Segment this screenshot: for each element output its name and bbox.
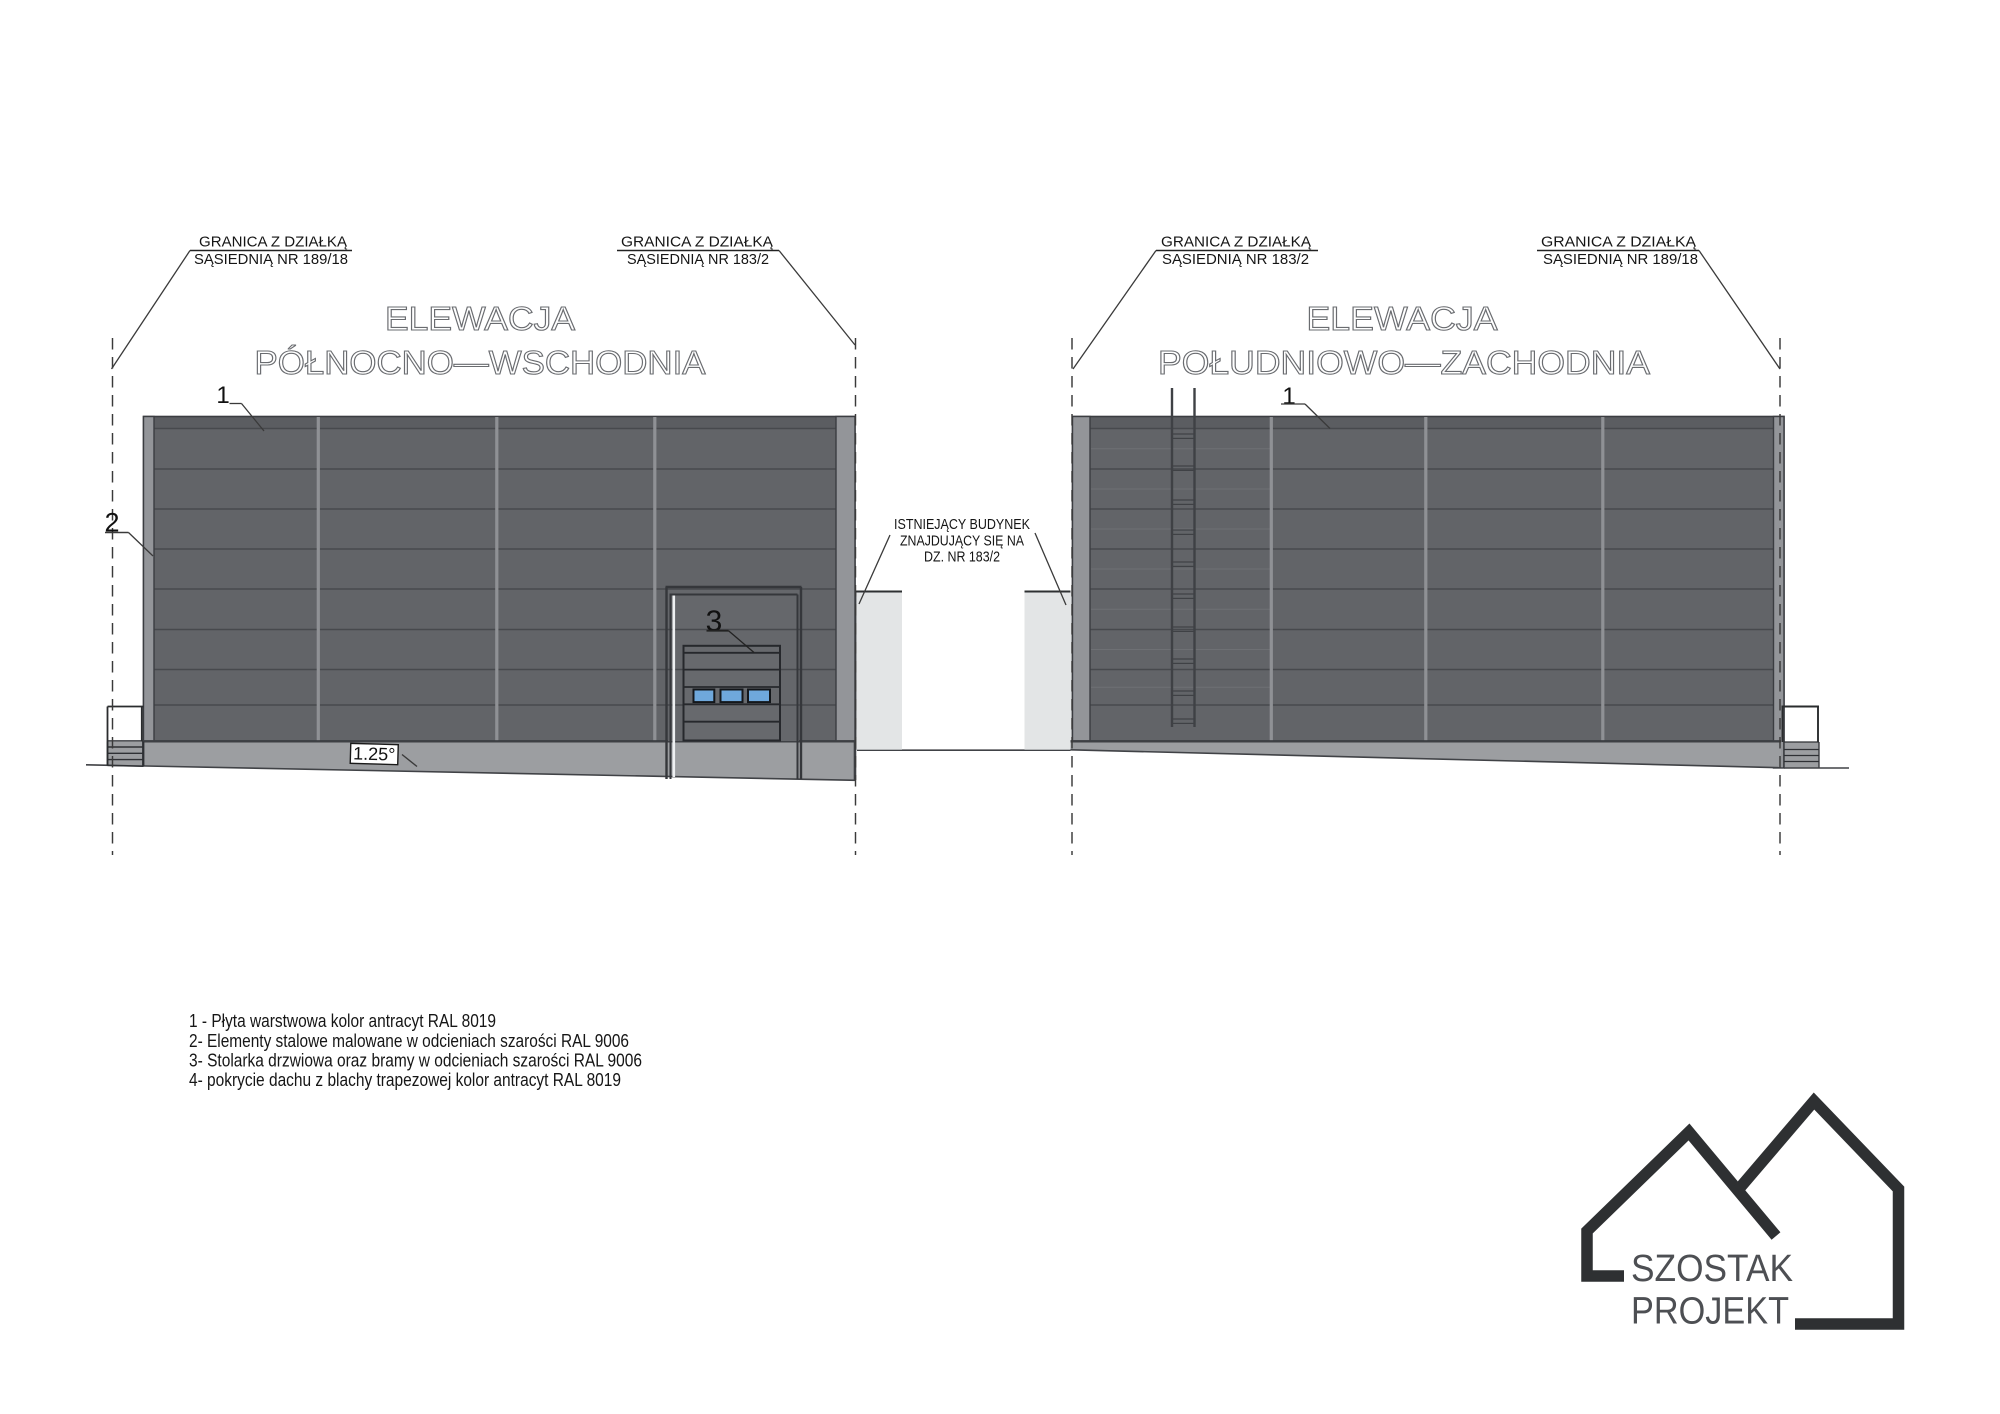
svg-text:SĄSIEDNIĄ NR 183/2: SĄSIEDNIĄ NR 183/2 [627, 251, 769, 268]
svg-text:PÓŁNOCNO—WSCHODNIA: PÓŁNOCNO—WSCHODNIA [255, 344, 706, 381]
svg-text:ELEWACJA: ELEWACJA [385, 300, 575, 337]
svg-text:GRANICA Z DZIAŁKĄ: GRANICA Z DZIAŁKĄ [1161, 234, 1312, 251]
svg-text:SZOSTAK: SZOSTAK [1631, 1248, 1793, 1290]
svg-text:SĄSIEDNIĄ NR 189/18: SĄSIEDNIĄ NR 189/18 [194, 251, 348, 268]
svg-text:1.25°: 1.25° [353, 743, 396, 764]
svg-text:DZ. NR 183/2: DZ. NR 183/2 [924, 549, 1000, 566]
svg-text:1: 1 [1282, 383, 1295, 410]
svg-text:ISTNIEJĄCY BUDYNEK: ISTNIEJĄCY BUDYNEK [894, 516, 1030, 533]
svg-text:4- pokrycie dachu z blachy tra: 4- pokrycie dachu z blachy trapezowej ko… [189, 1070, 621, 1090]
svg-text:PROJEKT: PROJEKT [1631, 1291, 1789, 1333]
svg-text:3: 3 [706, 605, 723, 638]
svg-text:ZNAJDUJĄCY SIĘ NA: ZNAJDUJĄCY SIĘ NA [900, 533, 1024, 550]
svg-text:GRANICA Z DZIAŁKĄ: GRANICA Z DZIAŁKĄ [199, 234, 348, 251]
svg-text:POŁUDNIOWO—ZACHODNIA: POŁUDNIOWO—ZACHODNIA [1158, 344, 1650, 381]
svg-text:1: 1 [216, 382, 229, 409]
svg-text:3- Stolarka drzwiowa oraz bram: 3- Stolarka drzwiowa oraz bramy w odcien… [189, 1050, 642, 1070]
svg-text:ELEWACJA: ELEWACJA [1307, 300, 1498, 337]
svg-text:2- Elementy stalowe malowane w: 2- Elementy stalowe malowane w odcieniac… [189, 1031, 629, 1051]
svg-text:GRANICA Z DZIAŁKĄ: GRANICA Z DZIAŁKĄ [621, 234, 774, 251]
svg-text:1 - Płyta warstwowa kolor antr: 1 - Płyta warstwowa kolor antracyt RAL 8… [189, 1011, 496, 1031]
svg-text:SĄSIEDNIĄ NR 189/18: SĄSIEDNIĄ NR 189/18 [1543, 251, 1698, 268]
svg-text:GRANICA Z DZIAŁKĄ: GRANICA Z DZIAŁKĄ [1541, 234, 1697, 251]
svg-text:SĄSIEDNIĄ NR 183/2: SĄSIEDNIĄ NR 183/2 [1162, 251, 1309, 268]
